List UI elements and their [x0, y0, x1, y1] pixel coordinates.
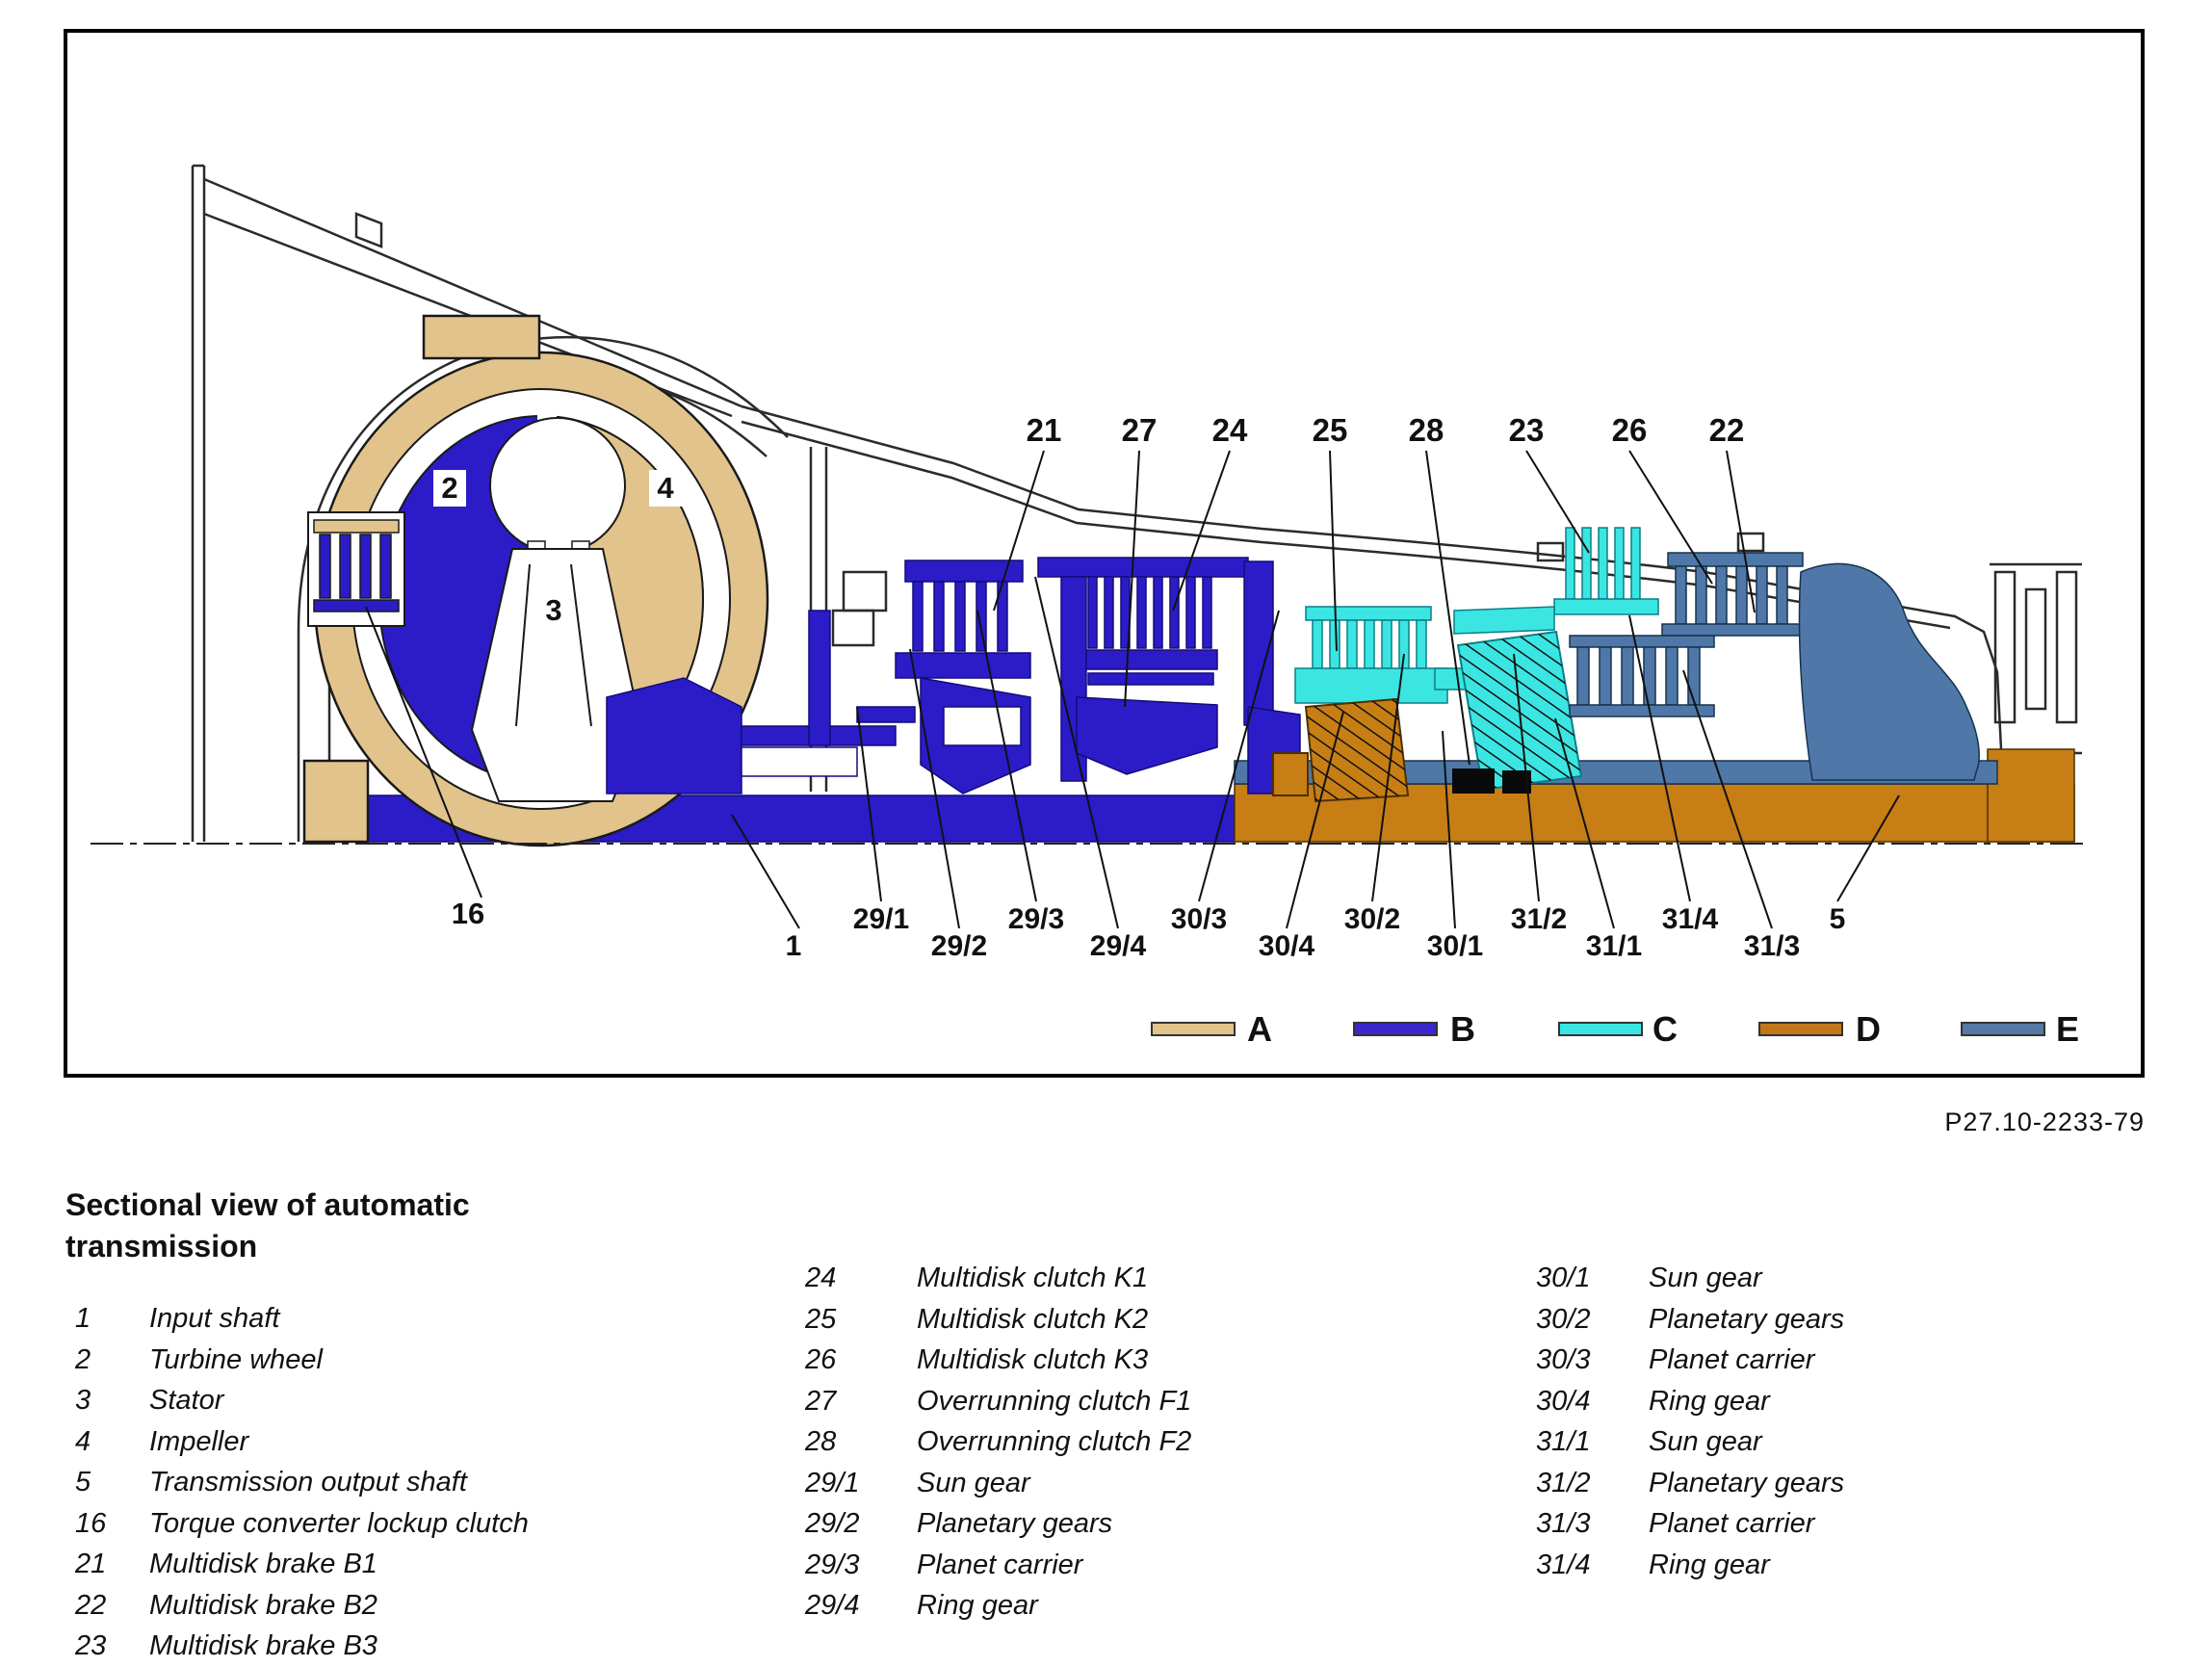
parts-list-row: 30/1 Sun gear	[1536, 1258, 2172, 1299]
callout-29-1: 29/1	[853, 903, 909, 935]
part-number: 31/4	[1536, 1545, 1649, 1586]
part-number: 24	[805, 1258, 917, 1299]
parts-list-row: 16 Torque converter lockup clutch	[75, 1503, 749, 1545]
part-label: Torque converter lockup clutch	[149, 1503, 749, 1545]
part-label: Planetary gears	[1649, 1299, 2172, 1341]
parts-list-row: 4 Impeller	[75, 1421, 749, 1463]
part-label: Planetary gears	[1649, 1463, 2172, 1504]
parts-list-row: 25 Multidisk clutch K2	[805, 1299, 1498, 1341]
callout-26: 26	[1612, 412, 1648, 448]
color-legend: A B C D E	[1152, 1009, 2079, 1049]
parts-list-row: 28 Overrunning clutch F2	[805, 1421, 1498, 1463]
callout-4: 4	[657, 471, 674, 505]
legend-swatch-a	[1152, 1023, 1235, 1035]
part-number: 29/4	[805, 1585, 917, 1627]
parts-list-column-1: 1 Input shaft 2 Turbine wheel 3 Stator 4…	[75, 1298, 749, 1667]
parts-list-row: 1 Input shaft	[75, 1298, 749, 1340]
part-label: Multidisk clutch K1	[917, 1258, 1498, 1299]
callout-22: 22	[1709, 412, 1745, 448]
part-number: 30/4	[1536, 1381, 1649, 1422]
legend-swatch-b	[1354, 1023, 1437, 1035]
callout-28: 28	[1409, 412, 1444, 448]
callout-30-3: 30/3	[1171, 903, 1227, 935]
parts-list-row: 5 Transmission output shaft	[75, 1462, 749, 1503]
legend-key-a: A	[1247, 1009, 1272, 1049]
parts-list-row: 29/1 Sun gear	[805, 1463, 1498, 1504]
legend-swatch-d	[1759, 1023, 1842, 1035]
parts-list-row: 2 Turbine wheel	[75, 1340, 749, 1381]
part-label: Input shaft	[149, 1298, 749, 1340]
part-number: 16	[75, 1503, 149, 1545]
part-number: 31/3	[1536, 1503, 1649, 1545]
parts-list-row: 24 Multidisk clutch K1	[805, 1258, 1498, 1299]
part-label: Multidisk brake B2	[149, 1585, 749, 1627]
parts-list-row: 30/4 Ring gear	[1536, 1381, 2172, 1422]
part-label: Sun gear	[917, 1463, 1498, 1504]
part-number: 22	[75, 1585, 149, 1627]
part-label: Multidisk clutch K2	[917, 1299, 1498, 1341]
legend-key-d: D	[1856, 1009, 1881, 1049]
transmission-sectional-diagram: 21 27 24 25 28 23 26 22 2 4 3 16 29/1 29…	[67, 33, 2141, 1074]
part-label: Multidisk brake B1	[149, 1544, 749, 1585]
parts-list-row: 26 Multidisk clutch K3	[805, 1340, 1498, 1381]
part-number: 21	[75, 1544, 149, 1585]
part-label: Planet carrier	[1649, 1340, 2172, 1381]
figure-reference-code: P27.10-2233-79	[1944, 1107, 2145, 1137]
bottom-callout-labels-upper: 29/1 29/3 30/3 30/2 31/2 31/4 5	[853, 903, 1846, 935]
callout-24: 24	[1212, 412, 1248, 448]
part-label: Turbine wheel	[149, 1340, 749, 1381]
parts-list-row: 30/3 Planet carrier	[1536, 1340, 2172, 1381]
parts-list-row: 29/2 Planetary gears	[805, 1503, 1498, 1545]
part-number: 27	[805, 1381, 917, 1422]
part-label: Overrunning clutch F1	[917, 1381, 1498, 1422]
callout-16: 16	[452, 897, 484, 930]
part-label: Stator	[149, 1380, 749, 1421]
part-label: Planet carrier	[1649, 1503, 2172, 1545]
part-number: 2	[75, 1340, 149, 1381]
page: { "figure": { "reference_code": "P27.10-…	[0, 0, 2212, 1654]
callout-29-4: 29/4	[1090, 930, 1147, 962]
part-label: Multidisk clutch K3	[917, 1340, 1498, 1381]
parts-list-row: 29/3 Planet carrier	[805, 1545, 1498, 1586]
part-label: Sun gear	[1649, 1258, 2172, 1299]
parts-list-row: 3 Stator	[75, 1380, 749, 1421]
figure-frame: 21 27 24 25 28 23 26 22 2 4 3 16 29/1 29…	[64, 29, 2145, 1078]
callout-30-4: 30/4	[1259, 930, 1315, 962]
part-number: 29/2	[805, 1503, 917, 1545]
legend-key-e: E	[2056, 1009, 2079, 1049]
part-number: 29/3	[805, 1545, 917, 1586]
part-label: Planetary gears	[917, 1503, 1498, 1545]
callout-30-1: 30/1	[1427, 930, 1483, 962]
part-label: Ring gear	[1649, 1545, 2172, 1586]
part-number: 26	[805, 1340, 917, 1381]
callout-27: 27	[1122, 412, 1158, 448]
parts-list-row: 23 Multidisk brake B3	[75, 1626, 749, 1667]
parts-list-row: 31/4 Ring gear	[1536, 1545, 2172, 1586]
part-number: 23	[75, 1626, 149, 1667]
parts-list-column-3: 30/1 Sun gear 30/2 Planetary gears 30/3 …	[1536, 1258, 2172, 1585]
callout-23: 23	[1509, 412, 1545, 448]
parts-list-column-2: 24 Multidisk clutch K1 25 Multidisk clut…	[805, 1258, 1498, 1627]
part-label: Ring gear	[1649, 1381, 2172, 1422]
legend-key-c: C	[1652, 1009, 1678, 1049]
parts-list-row: 30/2 Planetary gears	[1536, 1299, 2172, 1341]
part-label: Transmission output shaft	[149, 1462, 749, 1503]
converter-hub	[490, 418, 625, 553]
parts-list-row: 22 Multidisk brake B2	[75, 1585, 749, 1627]
callout-3: 3	[545, 593, 561, 627]
part-number: 31/2	[1536, 1463, 1649, 1504]
callout-31-4: 31/4	[1662, 903, 1719, 935]
callout-31-1: 31/1	[1586, 930, 1642, 962]
parts-list-row: 31/3 Planet carrier	[1536, 1503, 2172, 1545]
part-label: Planet carrier	[917, 1545, 1498, 1586]
callout-25: 25	[1313, 412, 1348, 448]
overrunning-clutch-f2	[1452, 768, 1531, 794]
part-number: 30/2	[1536, 1299, 1649, 1341]
parts-list-row: 31/1 Sun gear	[1536, 1421, 2172, 1463]
callout-31-2: 31/2	[1511, 903, 1567, 935]
part-number: 29/1	[805, 1463, 917, 1504]
bottom-callout-labels-lower: 1 29/2 29/4 30/4 30/1 31/1 31/3	[786, 930, 1801, 962]
part-number: 4	[75, 1421, 149, 1463]
part-label: Impeller	[149, 1421, 749, 1463]
top-callout-labels: 21 27 24 25 28 23 26 22	[1027, 412, 1745, 448]
part-number: 30/3	[1536, 1340, 1649, 1381]
part-label: Ring gear	[917, 1585, 1498, 1627]
legend-key-b: B	[1450, 1009, 1475, 1049]
part-number: 3	[75, 1380, 149, 1421]
part-label: Multidisk brake B3	[149, 1626, 749, 1667]
part-number: 31/1	[1536, 1421, 1649, 1463]
parts-list-row: 27 Overrunning clutch F1	[805, 1381, 1498, 1422]
part-number: 5	[75, 1462, 149, 1503]
legend-swatch-c	[1559, 1023, 1642, 1035]
parts-list-row: 29/4 Ring gear	[805, 1585, 1498, 1627]
figure-title: Sectional view of automatic transmission	[65, 1185, 470, 1267]
parts-list-row: 31/2 Planetary gears	[1536, 1463, 2172, 1504]
part-number: 25	[805, 1299, 917, 1341]
lockup-clutch	[308, 512, 404, 626]
part-label: Sun gear	[1649, 1421, 2172, 1463]
callout-2: 2	[441, 471, 457, 505]
callout-29-3: 29/3	[1008, 903, 1064, 935]
parts-list-row: 21 Multidisk brake B1	[75, 1544, 749, 1585]
legend-swatch-e	[1962, 1023, 2044, 1035]
part-label: Overrunning clutch F2	[917, 1421, 1498, 1463]
part-number: 1	[75, 1298, 149, 1340]
callout-1: 1	[786, 930, 802, 962]
callout-21: 21	[1027, 412, 1062, 448]
part-number: 30/1	[1536, 1258, 1649, 1299]
part-number: 28	[805, 1421, 917, 1463]
callout-30-2: 30/2	[1344, 903, 1400, 935]
callout-31-3: 31/3	[1744, 930, 1800, 962]
callout-29-2: 29/2	[931, 930, 987, 962]
callout-5: 5	[1830, 903, 1846, 935]
